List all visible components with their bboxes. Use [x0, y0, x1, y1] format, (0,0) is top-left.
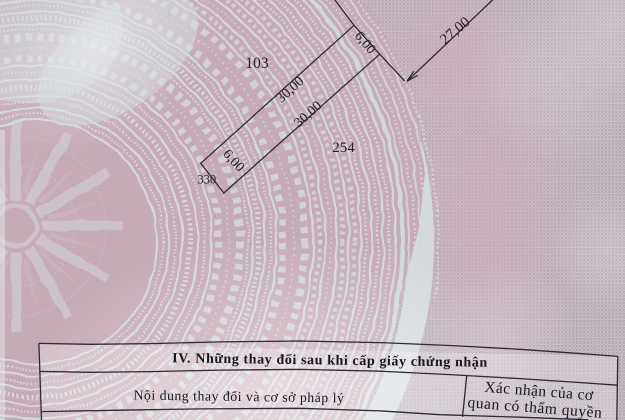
svg-text:103: 103: [245, 55, 269, 72]
svg-text:Nội dung thay đổi và cơ sở phá: Nội dung thay đổi và cơ sở pháp lý: [133, 388, 344, 406]
svg-text:254: 254: [332, 140, 355, 156]
svg-text:330: 330: [197, 173, 216, 187]
